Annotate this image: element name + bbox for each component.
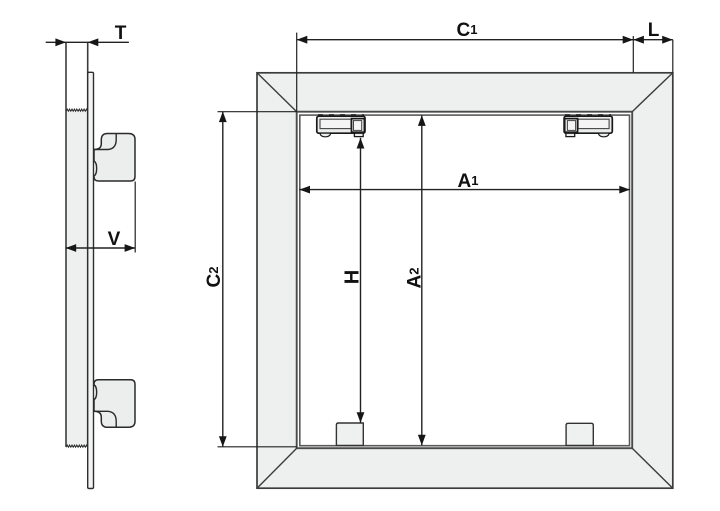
svg-text:C1: C1 [457,20,478,41]
svg-text:H: H [341,270,363,284]
svg-text:C2: C2 [204,267,225,288]
svg-text:V: V [108,229,121,250]
svg-text:T: T [115,23,127,44]
svg-text:L: L [648,20,660,41]
